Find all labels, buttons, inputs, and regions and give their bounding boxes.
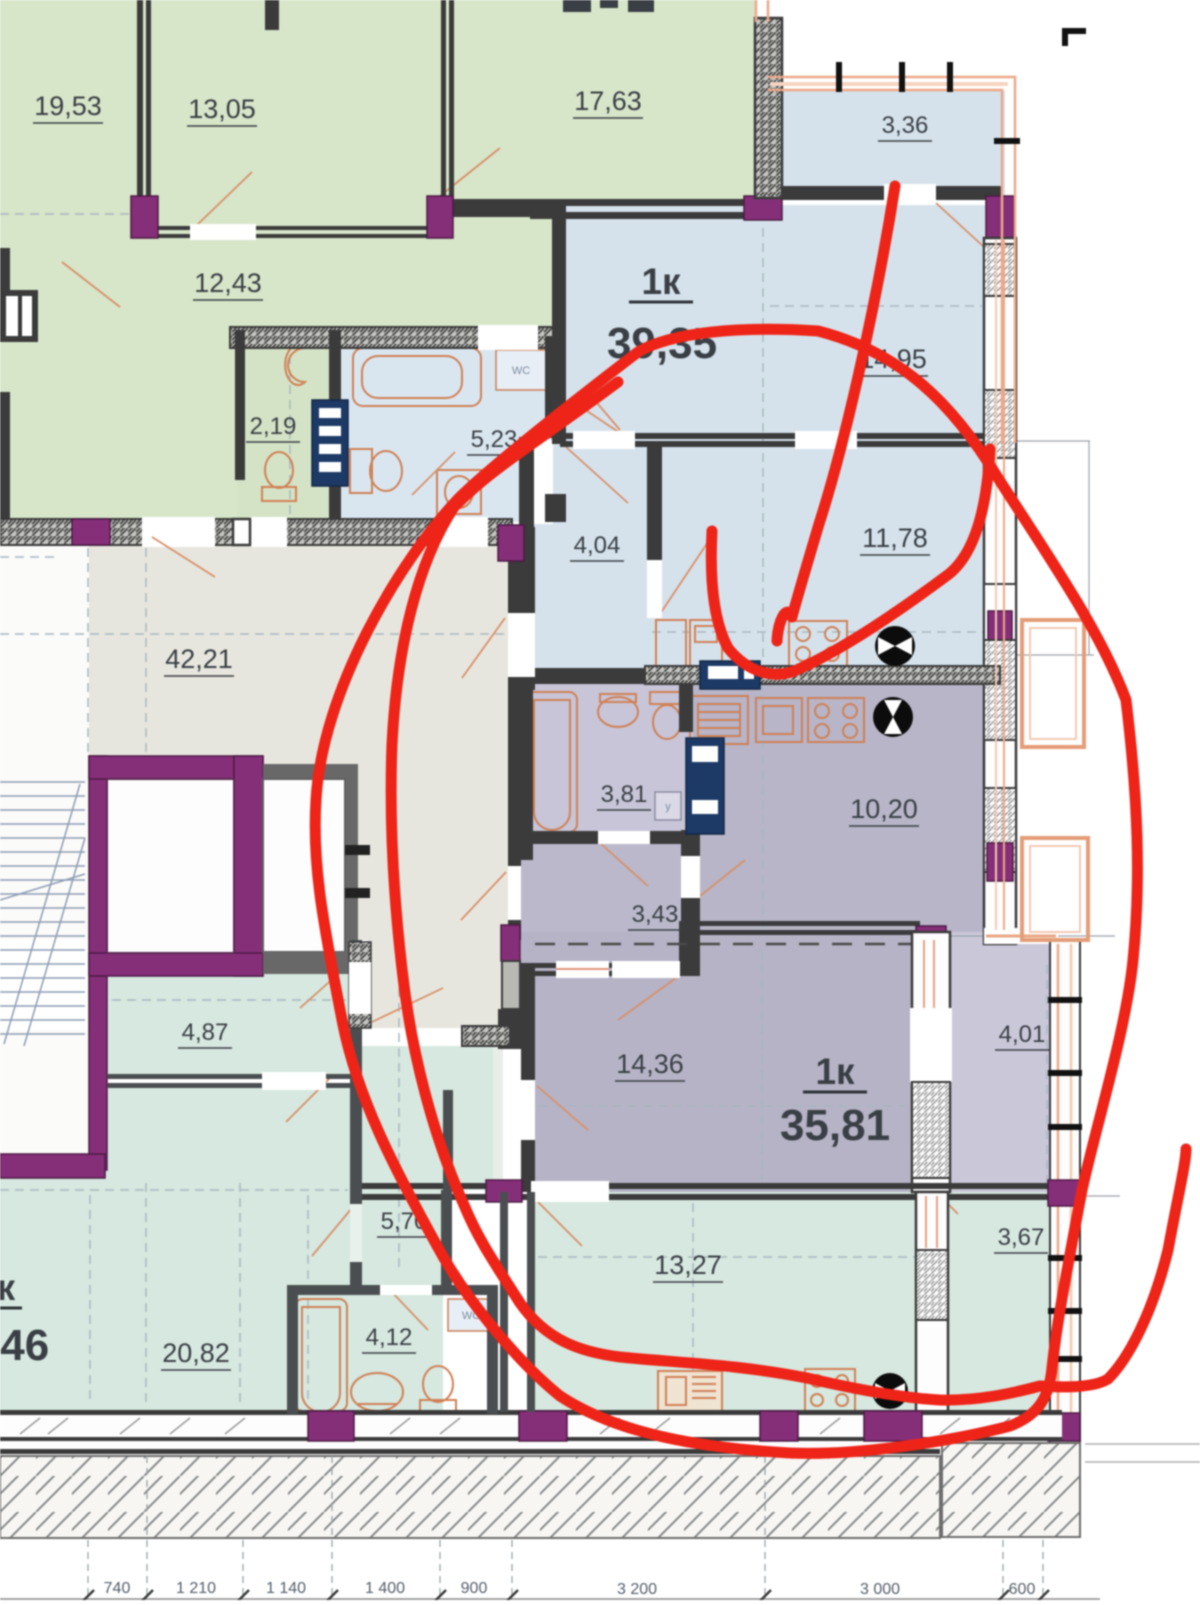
svg-text:2,19: 2,19 [250, 413, 297, 440]
svg-text:13,05: 13,05 [188, 94, 256, 124]
svg-text:y: y [665, 801, 671, 813]
svg-text:900: 900 [461, 1580, 488, 1597]
svg-text:42,21: 42,21 [165, 644, 233, 674]
svg-text:14,36: 14,36 [616, 1049, 684, 1079]
svg-text:600: 600 [1009, 1581, 1036, 1598]
svg-text:4,12: 4,12 [366, 1324, 413, 1351]
svg-text:4,01: 4,01 [999, 1021, 1046, 1048]
svg-text:19,53: 19,53 [34, 91, 102, 121]
svg-text:11,78: 11,78 [862, 523, 928, 553]
svg-text:10,20: 10,20 [850, 794, 918, 824]
svg-text:3,36: 3,36 [882, 112, 929, 139]
svg-text:4,87: 4,87 [182, 1019, 229, 1046]
svg-text:17,63: 17,63 [574, 86, 642, 116]
svg-text:13,27: 13,27 [654, 1250, 722, 1280]
svg-text:1к: 1к [815, 1051, 855, 1092]
svg-text:35,81: 35,81 [780, 1101, 890, 1150]
svg-text:1 140: 1 140 [266, 1580, 306, 1597]
svg-text:WC: WC [512, 365, 530, 377]
svg-text:12,43: 12,43 [194, 268, 262, 298]
svg-text:1к: 1к [641, 261, 681, 302]
svg-text:1к: 1к [0, 1267, 16, 1308]
svg-text:1 400: 1 400 [365, 1580, 405, 1597]
svg-text:3,67: 3,67 [998, 1224, 1045, 1251]
svg-text:3,81: 3,81 [601, 781, 648, 808]
svg-text:740: 740 [104, 1580, 131, 1597]
svg-text:3 000: 3 000 [860, 1581, 900, 1598]
svg-text:4,04: 4,04 [574, 532, 621, 559]
svg-text:,46: ,46 [0, 1321, 49, 1370]
svg-text:1 210: 1 210 [176, 1580, 216, 1597]
svg-text:3 200: 3 200 [617, 1581, 657, 1598]
svg-text:3,43: 3,43 [632, 901, 679, 928]
svg-text:20,82: 20,82 [162, 1338, 230, 1368]
